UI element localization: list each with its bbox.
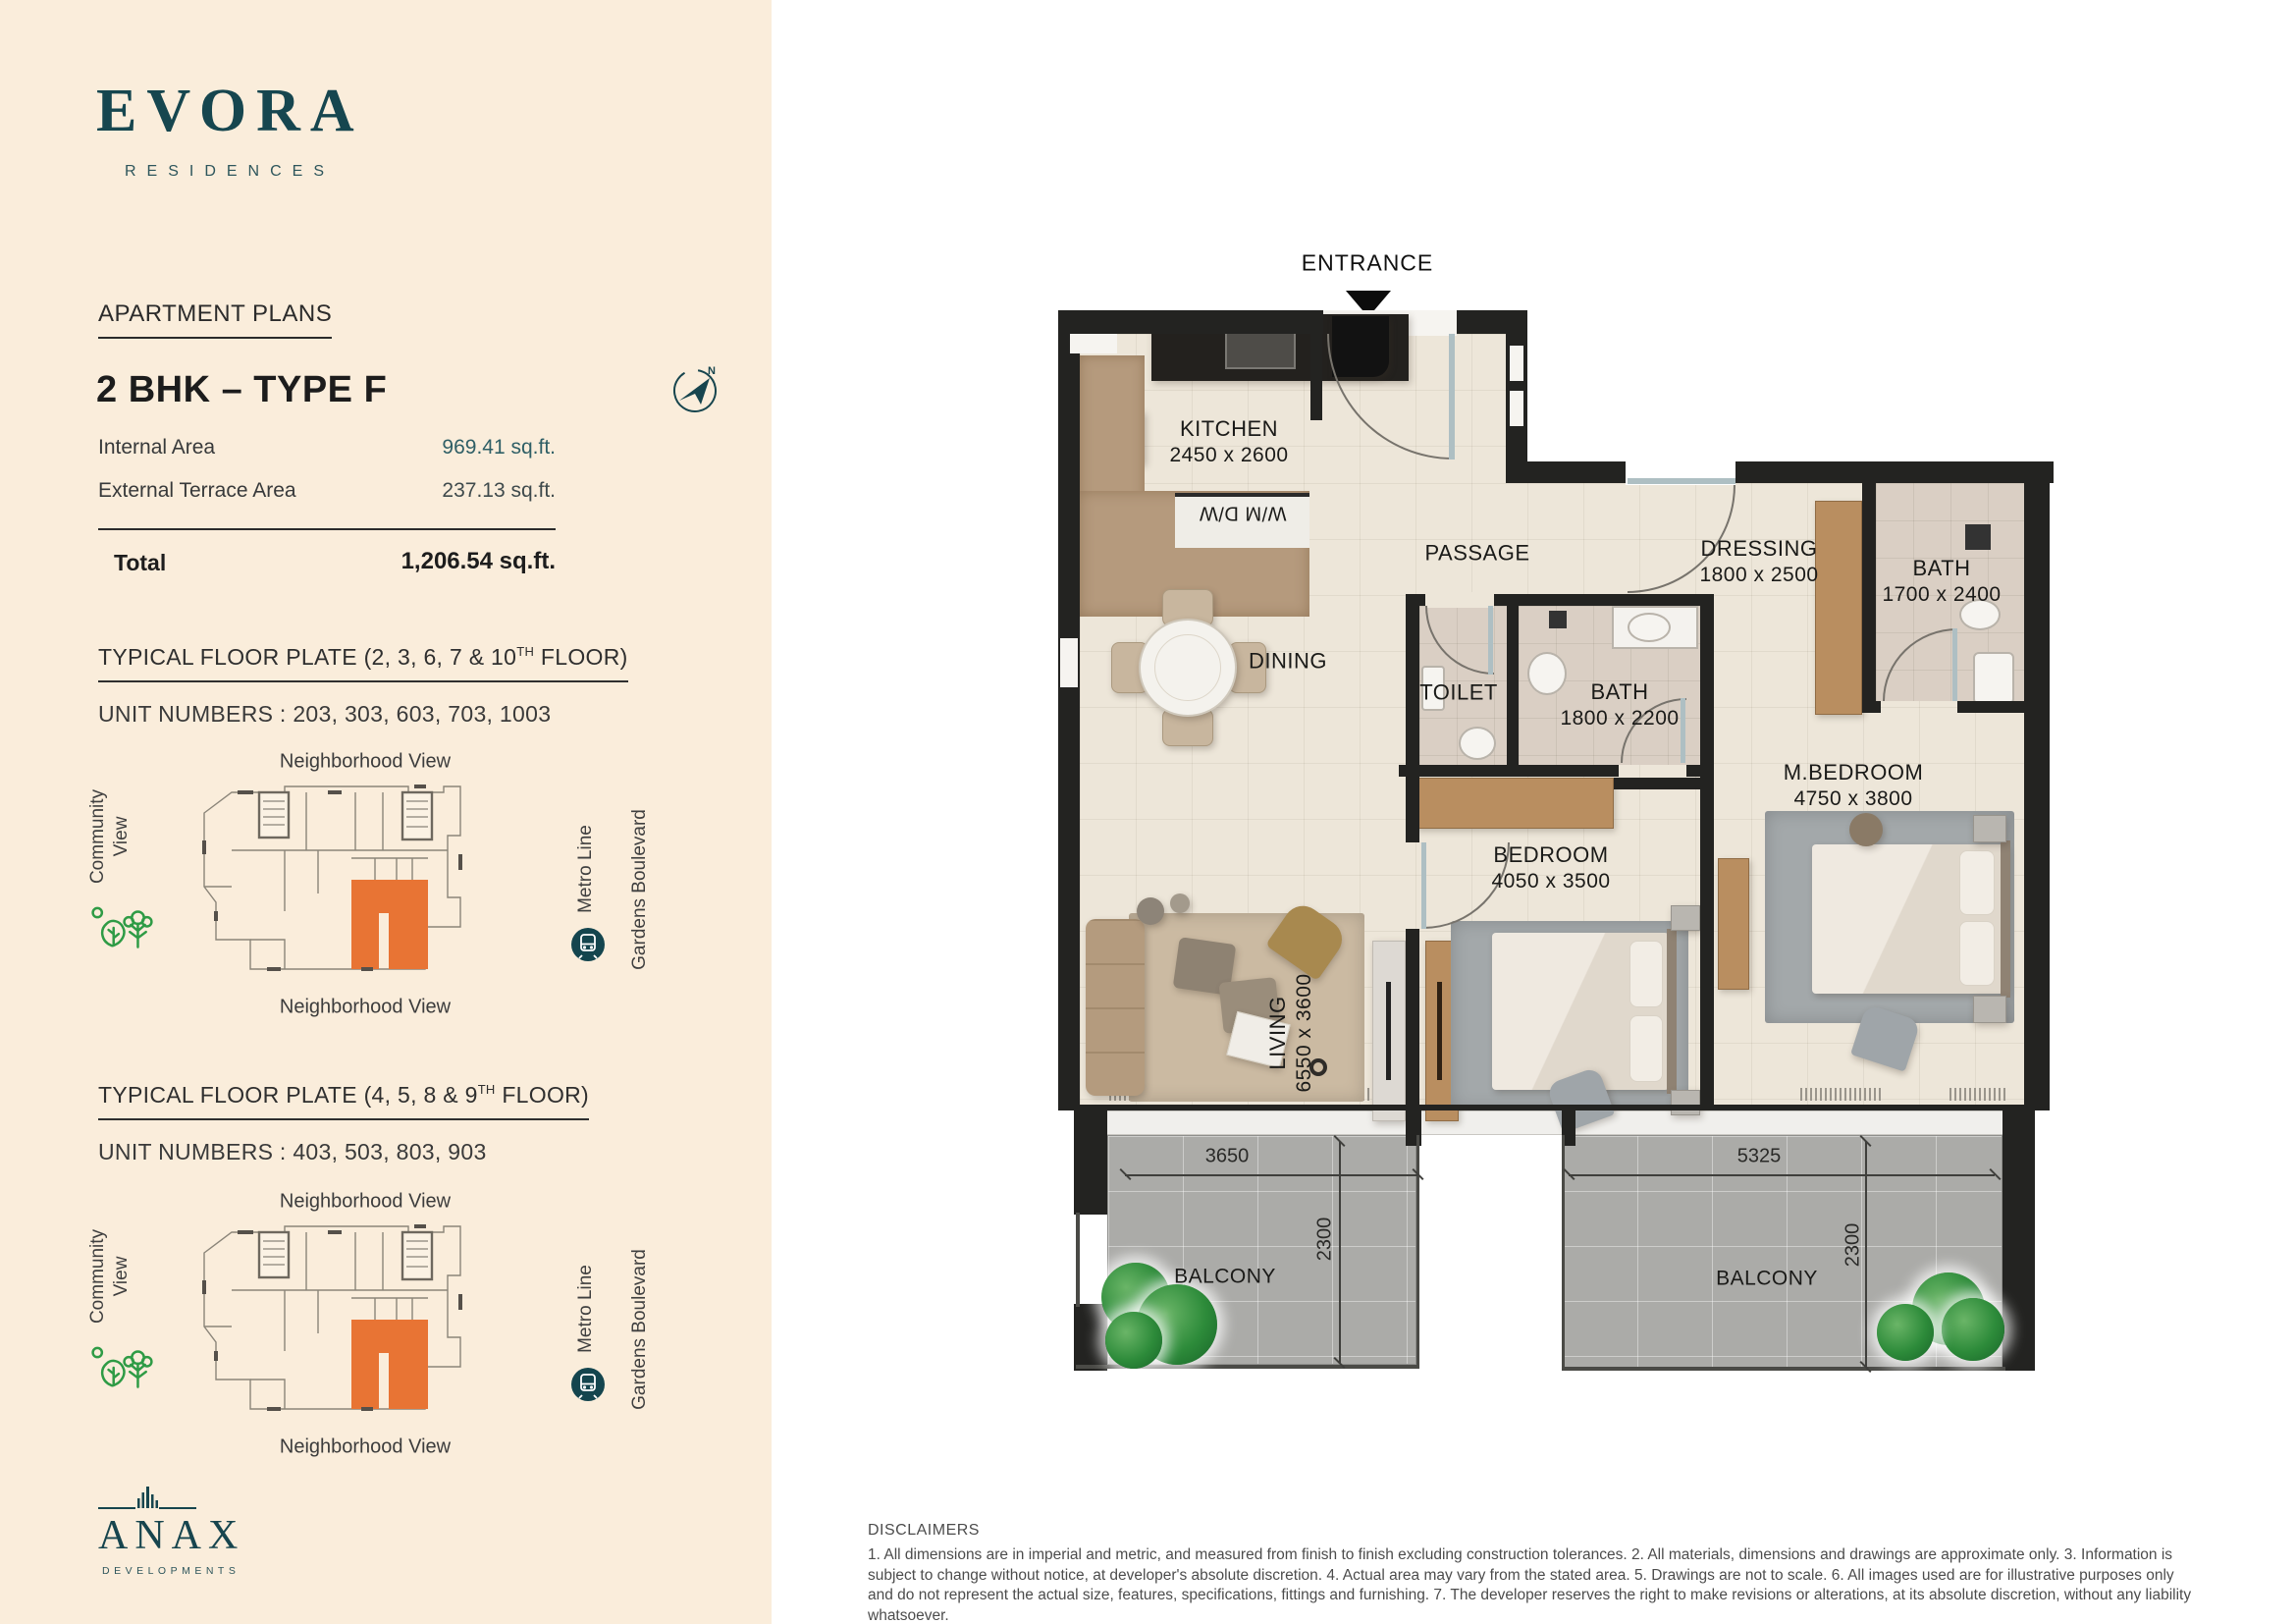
developer-skyline-icon: [98, 1485, 196, 1510]
room-name: BATH: [1560, 678, 1679, 705]
dim-line: [1569, 1174, 1995, 1176]
plant: [1877, 1304, 1934, 1361]
room-name: LIVING: [1264, 973, 1291, 1092]
dim-line: [1339, 1141, 1341, 1363]
room-name: BEDROOM: [1491, 841, 1610, 868]
dim-line: [1865, 1141, 1867, 1367]
neighborhood-view-label: Neighborhood View: [280, 1191, 451, 1214]
room-name: BATH: [1882, 555, 2001, 581]
room-label-living: LIVING6550 x 3600: [1264, 973, 1317, 1092]
heading-text: FLOOR): [534, 644, 627, 670]
developer-sub: DEVELOPMENTS: [102, 1565, 240, 1577]
nightstand: [1973, 996, 2006, 1023]
room-dims: 4750 x 3800: [1784, 785, 1924, 812]
wall: [1862, 701, 1881, 713]
tv: [1386, 982, 1391, 1080]
brand-tagline: RESIDENCES: [98, 163, 361, 181]
disclaimers-body: 1. All dimensions are in imperial and me…: [868, 1545, 2195, 1624]
pillow: [1959, 921, 1995, 986]
area-row-value: 969.41 sq.ft.: [359, 436, 556, 460]
pillow: [1629, 1015, 1663, 1082]
shower-head: [1965, 524, 1991, 550]
divider: [98, 528, 556, 530]
gardens-boulevard-label: Gardens Boulevard: [628, 1249, 652, 1410]
wall: [1310, 310, 1322, 420]
disclaimers-title: DISCLAIMERS: [868, 1522, 980, 1540]
community-line: Community: [86, 1229, 110, 1324]
side-table: [1170, 893, 1190, 913]
room-dims: 1800 x 2200: [1560, 705, 1679, 731]
master-tv-console: [1718, 858, 1749, 990]
nightstand: [1671, 905, 1700, 931]
section-label: APARTMENT PLANS: [98, 300, 332, 339]
balcony-wall: [1076, 1213, 1080, 1307]
neighborhood-view-label: Neighborhood View: [280, 751, 451, 774]
balcony-wall: [1416, 1135, 1419, 1369]
gardens-boulevard-label: Gardens Boulevard: [628, 809, 652, 970]
sidebar: EVORA RESIDENCES APARTMENT PLANS 2 BHK –…: [0, 0, 772, 1624]
wall: [1862, 483, 1876, 713]
community-line: View: [110, 1229, 133, 1324]
wall: [1507, 594, 1519, 777]
room-label-passage: PASSAGE: [1424, 540, 1529, 567]
room-name: DRESSING: [1699, 535, 1818, 562]
balcony-pier: [1074, 1304, 1107, 1371]
room-name: KITCHEN: [1169, 415, 1288, 442]
headboard: [1667, 929, 1677, 1094]
door-leaf: [1421, 842, 1426, 929]
door-leaf: [1449, 334, 1455, 460]
wall: [1700, 594, 1714, 1110]
balcony-pier: [1074, 1105, 1107, 1215]
room-label-toilet: TOILET: [1419, 679, 1498, 706]
mini-floor-plate-drawing: [169, 1223, 463, 1417]
room-label-master-bath: BATH1700 x 2400: [1882, 555, 2001, 608]
plant: [1105, 1312, 1162, 1369]
wall: [1519, 594, 1700, 606]
dim-label: 5325: [1737, 1146, 1782, 1168]
community-view-label: CommunityView: [86, 1229, 133, 1324]
balcony-pier: [2002, 1105, 2035, 1371]
window-hatch: [1800, 1088, 1883, 1101]
dressing-wardrobe: [1815, 501, 1862, 715]
wall: [1686, 765, 1700, 777]
door-leaf: [1628, 478, 1735, 484]
wall: [1406, 929, 1419, 1110]
wall: [1080, 1105, 2024, 1110]
metro-line-label: Metro Line: [574, 1265, 598, 1353]
neighborhood-view-label: Neighborhood View: [280, 997, 451, 1019]
wall: [1058, 310, 1080, 1110]
trees-icon: [90, 1345, 155, 1390]
mini-floor-plate-1: [169, 784, 463, 982]
room-dims: 4050 x 3500: [1491, 868, 1610, 894]
headboard: [2001, 840, 2010, 998]
pillow: [1959, 850, 1995, 915]
unit-type-title: 2 BHK – TYPE F: [96, 369, 387, 411]
toilet-wc: [1459, 727, 1496, 760]
room-label-master-bedroom: M.BEDROOM4750 x 3800: [1784, 759, 1924, 812]
bath-basin: [1628, 613, 1671, 642]
nightstand: [1973, 815, 2006, 842]
floor-plate-heading-2: TYPICAL FLOOR PLATE (4, 5, 8 & 9TH FLOOR…: [98, 1082, 589, 1120]
entrance-label: ENTRANCE: [1302, 250, 1434, 277]
heading-text: TYPICAL FLOOR PLATE (4, 5, 8 & 9: [98, 1082, 478, 1108]
community-line: View: [110, 789, 133, 884]
trees-icon: [90, 905, 155, 950]
tv: [1437, 982, 1442, 1080]
window: [1510, 391, 1523, 426]
wall: [1506, 461, 2054, 483]
wall-niche: [1070, 334, 1117, 353]
sofa: [1086, 919, 1145, 1096]
round-table: [1849, 813, 1883, 846]
metro-line-label: Metro Line: [574, 825, 598, 913]
bedroom-console: [1415, 778, 1614, 829]
appliance-label: W/M D/W: [1199, 500, 1286, 526]
area-row-label: External Terrace Area: [98, 479, 296, 503]
balcony-wall: [1562, 1367, 2005, 1371]
door-leaf: [1681, 698, 1685, 763]
wall: [1399, 765, 1519, 777]
dining-table-ring: [1154, 634, 1221, 701]
window-hatch: [1949, 1088, 2008, 1101]
community-line: Community: [86, 789, 110, 884]
room-label-dining: DINING: [1249, 648, 1327, 675]
wall: [2024, 461, 2050, 1110]
room-dims: 6550 x 3600: [1291, 973, 1317, 1092]
unit-numbers-1: UNIT NUMBERS : 203, 303, 603, 703, 1003: [98, 701, 551, 728]
heading-superscript: TH: [478, 1082, 496, 1097]
wall: [1614, 778, 1700, 789]
window: [1060, 638, 1078, 687]
developer-name: ANAX: [98, 1512, 244, 1559]
room-label-bath: BATH1800 x 2200: [1560, 678, 1679, 731]
room-label-balcony-right: BALCONY: [1716, 1266, 1818, 1292]
area-row-value: 237.13 sq.ft.: [359, 479, 556, 503]
compass-north-label: N: [708, 365, 716, 377]
neighborhood-view-label: Neighborhood View: [280, 1436, 451, 1459]
window: [1510, 346, 1523, 381]
room-label-dressing: DRESSING1800 x 2500: [1699, 535, 1818, 588]
pillow: [1629, 941, 1663, 1007]
total-label: Total: [114, 550, 166, 576]
heading-superscript: TH: [516, 644, 534, 659]
room-dims: 2450 x 2600: [1169, 442, 1288, 468]
wall: [1058, 310, 1323, 334]
room-dims: 1800 x 2500: [1699, 562, 1818, 588]
floor-plate-heading-1: TYPICAL FLOOR PLATE (2, 3, 6, 7 & 10TH F…: [98, 644, 628, 682]
mini-floor-plate-drawing: [169, 784, 463, 977]
compass-icon: N: [669, 363, 721, 414]
door-leaf: [1488, 606, 1493, 675]
dim-label: 2300: [1314, 1218, 1337, 1262]
plant: [1942, 1298, 2004, 1361]
nightstand: [1671, 1090, 1700, 1115]
side-table: [1137, 897, 1164, 925]
brochure-page: EVORA RESIDENCES APARTMENT PLANS 2 BHK –…: [0, 0, 2296, 1624]
door-leaf: [1952, 628, 1957, 701]
heading-text: TYPICAL FLOOR PLATE (2, 3, 6, 7 & 10: [98, 644, 516, 670]
metro-icon: [570, 927, 606, 962]
room-label-balcony-left: BALCONY: [1174, 1264, 1276, 1290]
room-dims: 1700 x 2400: [1882, 581, 2001, 608]
wall: [1406, 594, 1419, 842]
dim-line: [1125, 1174, 1417, 1176]
master-bath-sink: [1973, 652, 2014, 705]
heading-text: FLOOR): [496, 1082, 589, 1108]
wall: [1519, 765, 1619, 777]
mini-floor-plate-2: [169, 1223, 463, 1422]
dim-label: 3650: [1205, 1146, 1250, 1168]
metro-icon: [570, 1367, 606, 1402]
shower-head: [1549, 611, 1567, 628]
community-view-label: CommunityView: [86, 789, 133, 884]
wall: [1957, 701, 2024, 713]
area-row-label: Internal Area: [98, 436, 215, 460]
room-name: M.BEDROOM: [1784, 759, 1924, 785]
unit-numbers-2: UNIT NUMBERS : 403, 503, 803, 903: [98, 1139, 487, 1165]
window-sill-band: [1080, 1110, 2024, 1135]
brand-logo: EVORA: [96, 77, 364, 146]
room-label-kitchen: KITCHEN2450 x 2600: [1169, 415, 1288, 468]
room-label-bedroom: BEDROOM4050 x 3500: [1491, 841, 1610, 894]
dim-label: 2300: [1842, 1223, 1865, 1268]
total-value: 1,206.54 sq.ft.: [359, 548, 556, 575]
